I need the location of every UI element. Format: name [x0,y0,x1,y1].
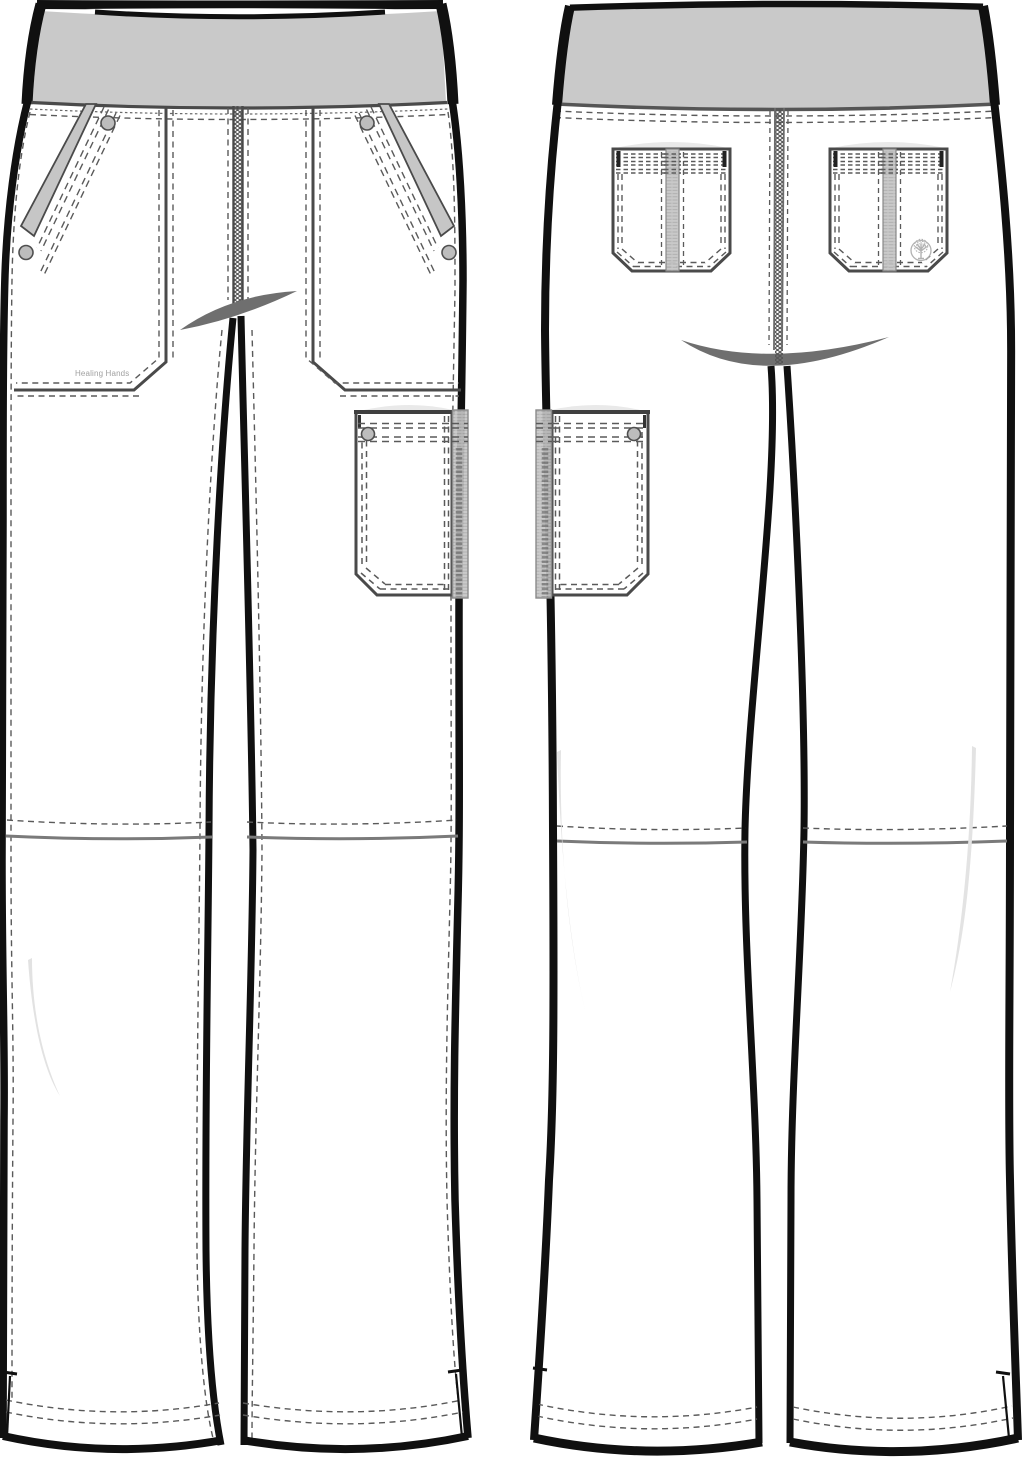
svg-text:Healing Hands: Healing Hands [75,369,129,378]
